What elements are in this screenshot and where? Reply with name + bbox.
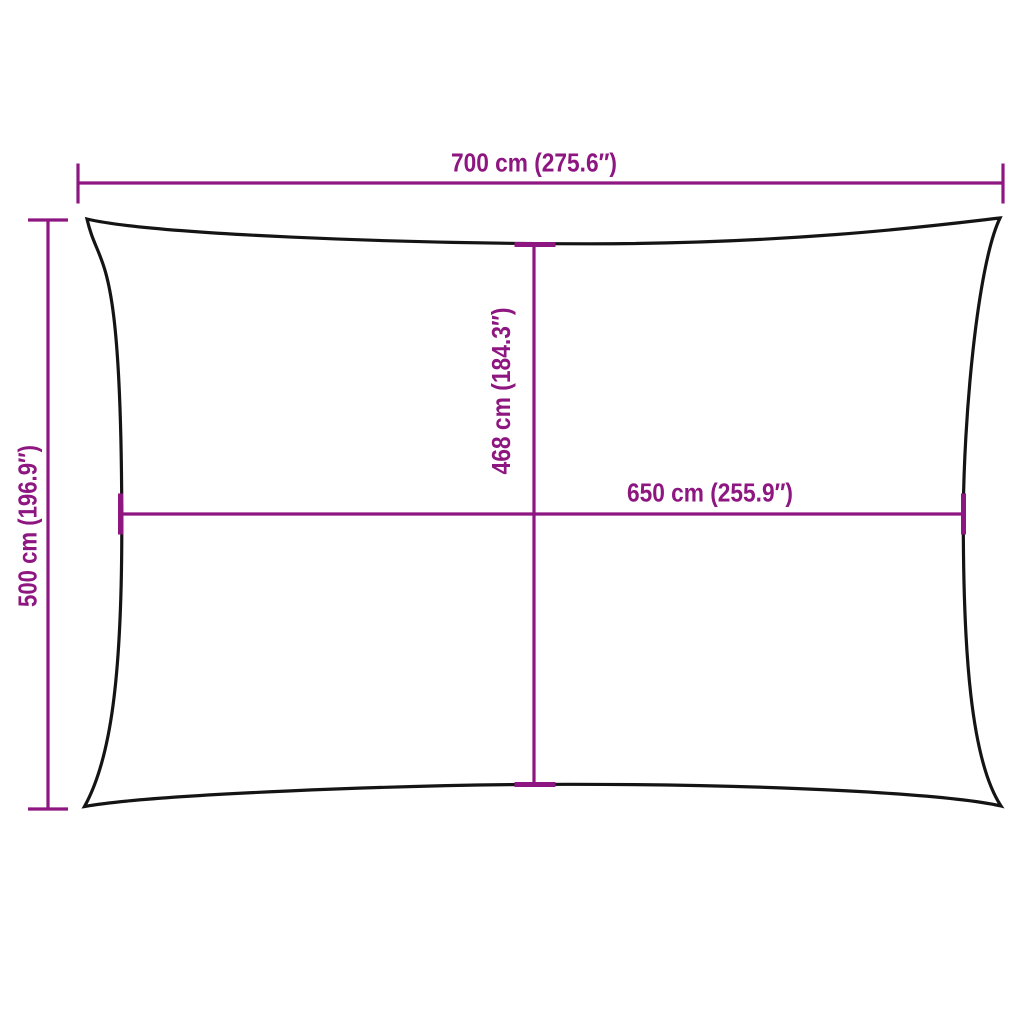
svg-text:700 cm (275.6″): 700 cm (275.6″) [451,148,617,178]
svg-text:500 cm (196.9″): 500 cm (196.9″) [13,445,43,607]
svg-text:468 cm (184.3″): 468 cm (184.3″) [486,308,516,475]
svg-text:650 cm (255.9″): 650 cm (255.9″) [627,478,793,508]
